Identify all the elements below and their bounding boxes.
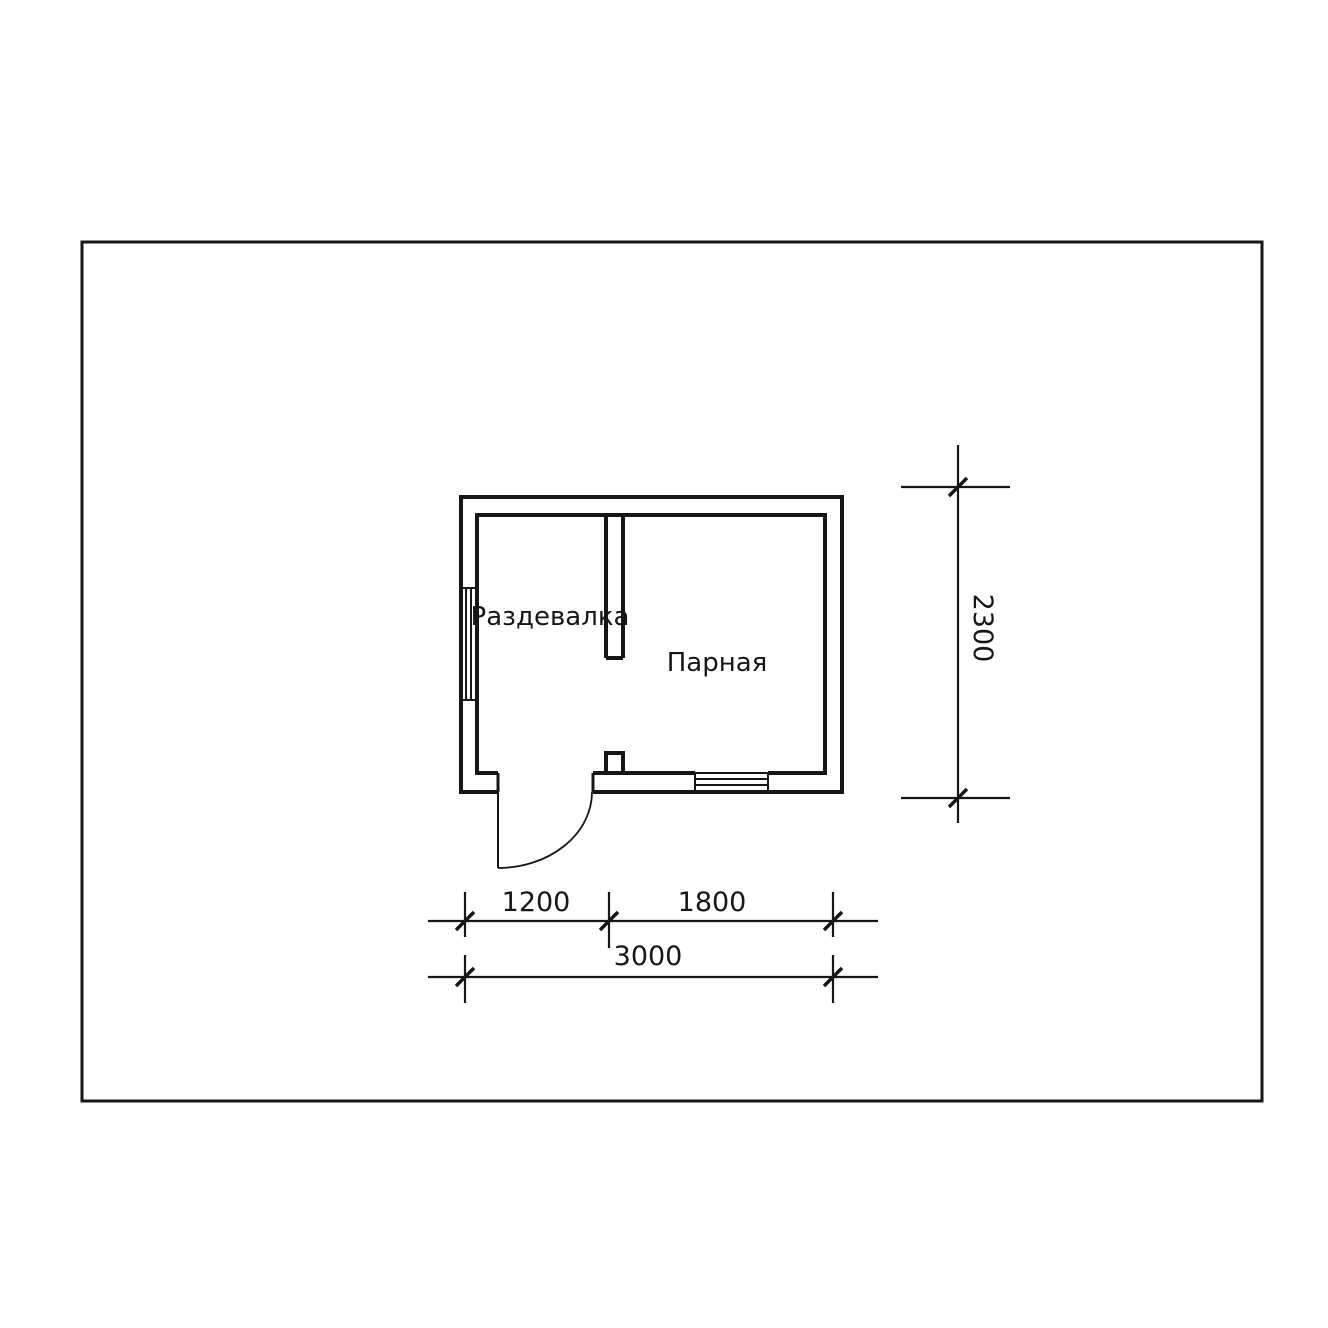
entrance-door-jambs (498, 773, 593, 792)
dim-label-total-width: 3000 (614, 941, 683, 972)
partition-wall (606, 515, 623, 773)
dimension-lines (428, 445, 1010, 1003)
entrance-door-swing-arc (498, 792, 592, 868)
dim-label-segment-left: 1200 (502, 887, 571, 918)
dim-label-segment-right: 1800 (678, 887, 747, 918)
exterior-wall-outer-line (461, 497, 842, 792)
exterior-wall-inner-line (477, 515, 825, 773)
window-bottom (695, 773, 768, 791)
drawing-page: Раздевалка Парная 1200 1800 3000 2300 (0, 0, 1328, 1328)
floor-plan-drawing: Раздевалка Парная 1200 1800 3000 2300 (0, 0, 1328, 1328)
dim-label-total-height: 2300 (967, 594, 998, 663)
room-label-steam-room: Парная (667, 648, 768, 678)
room-label-changing-room: Раздевалка (471, 602, 630, 632)
